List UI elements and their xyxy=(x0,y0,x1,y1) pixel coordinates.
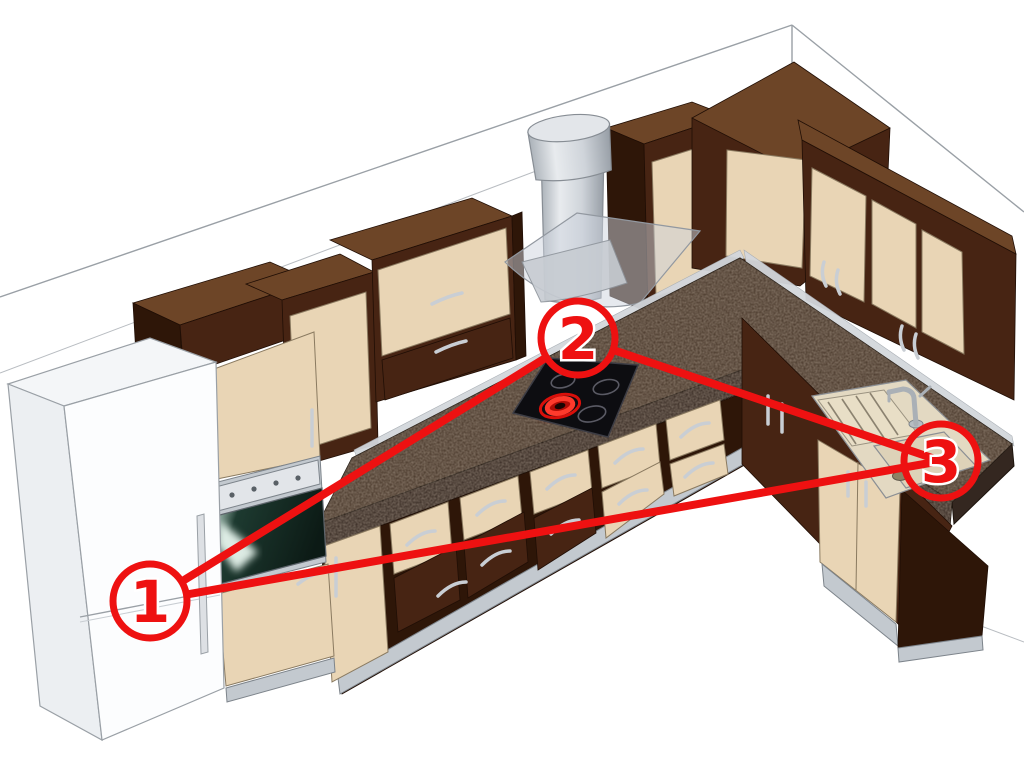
refrigerator xyxy=(8,338,224,740)
kitchen-scene-svg: 123 xyxy=(0,0,1024,768)
corner-door xyxy=(726,150,806,268)
marker-label: 1 xyxy=(130,568,170,636)
marker-label: 2 xyxy=(558,305,598,373)
hood-chimney-cap xyxy=(527,111,615,184)
kitchen-work-triangle-diagram: 123 xyxy=(0,0,1024,768)
marker-label: 3 xyxy=(921,428,961,496)
